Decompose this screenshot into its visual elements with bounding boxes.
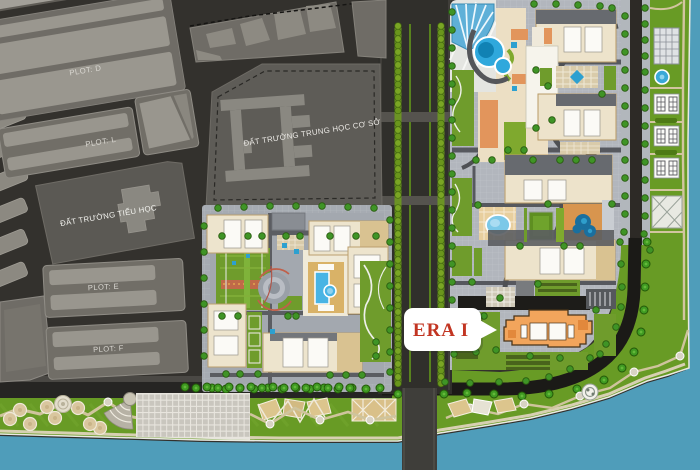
svg-text:PLOT: E: PLOT: E xyxy=(88,282,120,293)
svg-text:PLOT: F: PLOT: F xyxy=(93,344,124,355)
svg-text:ERA I: ERA I xyxy=(413,320,469,341)
